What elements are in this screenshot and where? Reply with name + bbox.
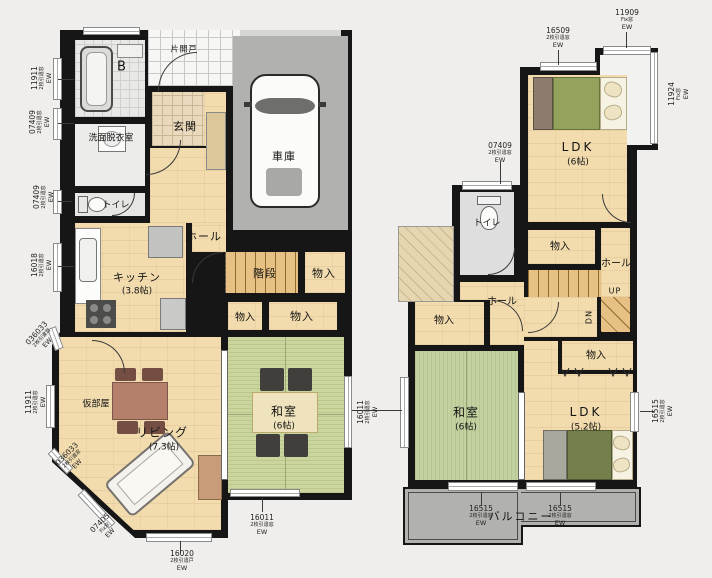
- zaisu-chair: [256, 434, 280, 457]
- hanger-mark: [560, 368, 570, 377]
- dim-label: 11909Fix窓EW: [615, 9, 639, 31]
- bed2-duvet: [567, 430, 612, 480]
- dim-label: 11924Fix窓EW: [668, 82, 690, 106]
- bed2-blanket: [543, 430, 567, 480]
- room-label-washroom: 洗面脱衣室: [88, 131, 133, 144]
- floor-plan-canvas: B 洗面脱衣室 トイレ キッチン (3.8帖) 玄関 片開戸 車庫 ホール UP…: [0, 0, 712, 578]
- dim-label: 165152枚引違窓EW: [468, 505, 494, 527]
- room-label-toilet-2f: トイレ: [473, 216, 500, 229]
- dim-label: 074092枚引違窓EW: [487, 142, 513, 164]
- sliding-door[interactable]: [518, 392, 525, 480]
- zaisu-chair: [260, 368, 284, 391]
- room-label-ldk-a: LDK: [562, 140, 595, 154]
- dining-table: [112, 382, 168, 420]
- car-mirror-right: [318, 102, 326, 107]
- room-label-spare: 仮部屋: [82, 397, 109, 410]
- room-label-storage-b: 物入: [235, 309, 255, 324]
- room-label-storage2-a: 物入: [550, 238, 570, 253]
- room-label-living: リビング: [136, 424, 188, 441]
- window: [146, 533, 212, 542]
- room-label-hall2-a: ホール: [601, 255, 631, 270]
- room-label-washitsu-1f-size: (6帖): [273, 419, 295, 432]
- stair-up-line: [225, 252, 226, 293]
- leader-tick: [58, 79, 74, 80]
- dim-label: 119112枚引違窓EW: [25, 389, 47, 415]
- leader-tick: [626, 32, 627, 48]
- leader-tick: [58, 201, 72, 202]
- window: [630, 392, 639, 432]
- lower-roof: [398, 226, 454, 302]
- dim-label: 074092枚引違窓EW: [29, 109, 51, 135]
- dim-label: 160202枚引違戸EW: [169, 550, 195, 572]
- room-label-washitsu-1f: 和室: [271, 403, 297, 420]
- dim-label: 160182枚引違窓EW: [31, 252, 53, 278]
- leader-tick: [262, 498, 263, 512]
- dining-chair: [117, 421, 138, 434]
- room-label-storage2-c: 物入: [586, 347, 606, 362]
- room-label-ldk-b: LDK: [570, 405, 603, 419]
- room-label-storage2-b: 物入: [434, 312, 454, 327]
- room-label-washitsu-2f: 和室: [453, 404, 479, 421]
- hanger-mark: [574, 368, 584, 377]
- car-sunroof: [266, 168, 302, 196]
- room-label-living-size: (7.3帖): [149, 440, 179, 453]
- stairs2-winder: [601, 297, 630, 332]
- sliding-door[interactable]: [221, 350, 228, 480]
- window: [603, 46, 651, 55]
- label-dn-2f: DN: [585, 310, 594, 324]
- window: [462, 181, 512, 190]
- room-label-balcony: バルコニー: [489, 508, 554, 524]
- label-up-2f: UP: [609, 287, 622, 296]
- room-label-washitsu-2f-size: (6帖): [455, 420, 477, 433]
- garage-door-opening: [240, 30, 341, 36]
- dim-label: 165092枚引違窓EW: [545, 27, 571, 49]
- room-label-hall2-b: ホール: [487, 293, 517, 308]
- window: [230, 489, 300, 497]
- room-label-stairs: 階段: [253, 265, 277, 281]
- window: [526, 482, 596, 491]
- window: [83, 27, 140, 35]
- bath-counter: [117, 44, 143, 58]
- room-label-toilet: トイレ: [102, 198, 129, 211]
- room-label-entrance: 玄関: [173, 118, 197, 134]
- window: [46, 385, 55, 428]
- kitchen-sink: [79, 238, 97, 282]
- dining-chair: [142, 368, 163, 381]
- room-label-hall-1f: ホール: [186, 228, 222, 244]
- window: [53, 108, 62, 140]
- room-label-ldk-b-size: (5.2帖): [571, 420, 601, 433]
- dim-label: 160112枚引違窓EW: [357, 399, 379, 425]
- zaisu-chair: [288, 368, 312, 391]
- refrigerator: [148, 226, 183, 258]
- car: [250, 74, 320, 208]
- window: [53, 243, 62, 292]
- label-entrance-door: 片開戸: [171, 44, 198, 55]
- window: [344, 376, 352, 448]
- window: [540, 62, 597, 71]
- window: [400, 377, 409, 448]
- dim-label: 160112枚引違窓EW: [249, 514, 275, 536]
- window: [448, 482, 518, 491]
- leader-tick: [500, 162, 501, 184]
- stove: [86, 300, 116, 328]
- label-up-1f: UP: [209, 269, 218, 282]
- room-label-ldk-a-size: (6帖): [567, 155, 589, 168]
- room-label-kitchen-size: (3.8帖): [122, 284, 152, 297]
- bathtub: [80, 46, 113, 112]
- kitchen-cabinet: [160, 298, 186, 330]
- tv-board: [198, 455, 222, 500]
- stairs2-straight: [528, 270, 601, 297]
- window: [650, 52, 658, 144]
- room-label-garage: 車庫: [272, 148, 296, 164]
- room-label-storage-c: 物入: [290, 308, 314, 324]
- car-mirror-left: [244, 102, 252, 107]
- bed-duvet: [553, 77, 600, 130]
- room-label-storage-a: 物入: [312, 265, 336, 281]
- dim-label: 165152枚引違窓EW: [652, 398, 674, 424]
- hanger-mark: [622, 368, 632, 377]
- leader-tick: [558, 50, 559, 65]
- shoe-cabinet: [206, 112, 226, 170]
- room-label-bath: B: [117, 60, 127, 75]
- toilet2-tank: [477, 196, 501, 205]
- dim-label: 165152枚引違窓EW: [547, 505, 573, 527]
- leader-tick: [58, 266, 74, 267]
- hanger-mark: [608, 368, 618, 377]
- dim-label: 074092枚引違窓EW: [33, 184, 55, 210]
- zaisu-chair: [284, 434, 308, 457]
- leader-tick: [58, 123, 74, 124]
- door-arc: [192, 252, 223, 283]
- toilet-fixture: [78, 196, 88, 213]
- dim-label: 119112枚引違窓EW: [31, 65, 53, 91]
- car-windshield: [255, 98, 315, 114]
- bed-headboard: [533, 77, 553, 130]
